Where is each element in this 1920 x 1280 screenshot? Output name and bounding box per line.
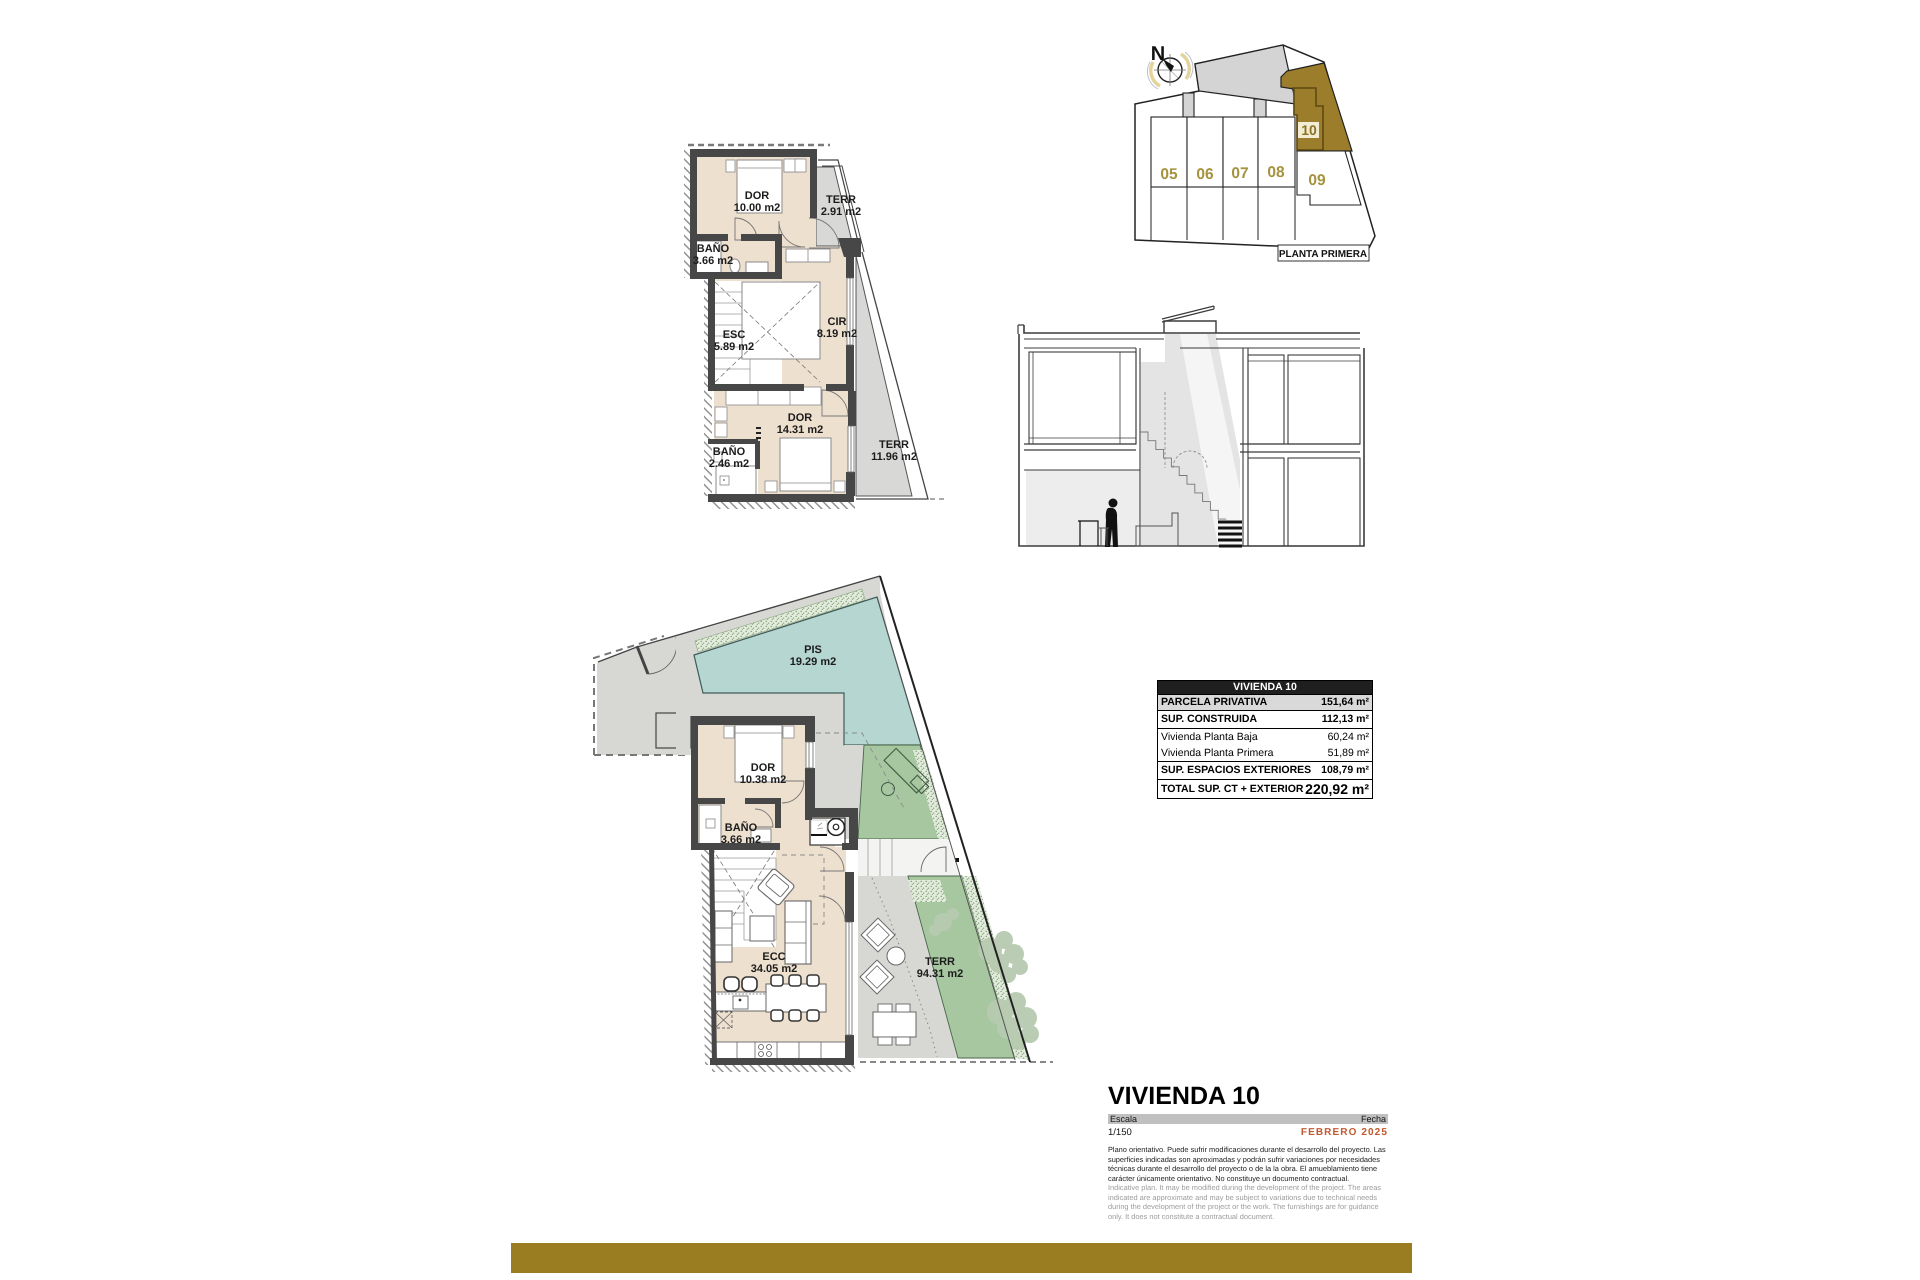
svg-text:TERR: TERR [826,194,856,206]
svg-text:BAÑO: BAÑO [725,821,758,834]
svg-text:3.66 m2: 3.66 m2 [721,834,761,846]
svg-text:ESC: ESC [723,329,746,341]
svg-text:08: 08 [1267,164,1285,181]
svg-text:11.96 m2: 11.96 m2 [871,451,917,463]
svg-text:8.19 m2: 8.19 m2 [817,328,857,340]
svg-text:BAÑO: BAÑO [697,242,730,255]
svg-text:5.89 m2: 5.89 m2 [714,341,754,353]
svg-text:PLANTA PRIMERA: PLANTA PRIMERA [1279,249,1367,260]
svg-text:07: 07 [1231,165,1248,182]
svg-text:CIR: CIR [828,316,847,328]
svg-text:09: 09 [1308,172,1326,189]
svg-text:14.31 m2: 14.31 m2 [777,424,823,436]
svg-text:TERR: TERR [925,956,955,968]
svg-text:05: 05 [1160,166,1178,183]
svg-text:94.31 m2: 94.31 m2 [917,968,963,980]
svg-text:06: 06 [1196,166,1214,183]
svg-text:19.29 m2: 19.29 m2 [790,656,836,668]
svg-text:PIS: PIS [804,644,822,656]
svg-text:10.00 m2: 10.00 m2 [734,202,780,214]
svg-text:10: 10 [1301,122,1317,138]
svg-text:34.05 m2: 34.05 m2 [751,963,797,975]
svg-text:2.91 m2: 2.91 m2 [821,206,861,218]
svg-text:ECC: ECC [762,951,785,963]
svg-text:TERR: TERR [879,439,909,451]
svg-text:DOR: DOR [745,190,770,202]
svg-text:DOR: DOR [751,762,776,774]
svg-text:3.66 m2: 3.66 m2 [693,255,733,267]
svg-text:2.46 m2: 2.46 m2 [709,458,749,470]
svg-text:10.38 m2: 10.38 m2 [740,774,786,786]
svg-text:BAÑO: BAÑO [713,445,746,458]
svg-text:DOR: DOR [788,412,813,424]
